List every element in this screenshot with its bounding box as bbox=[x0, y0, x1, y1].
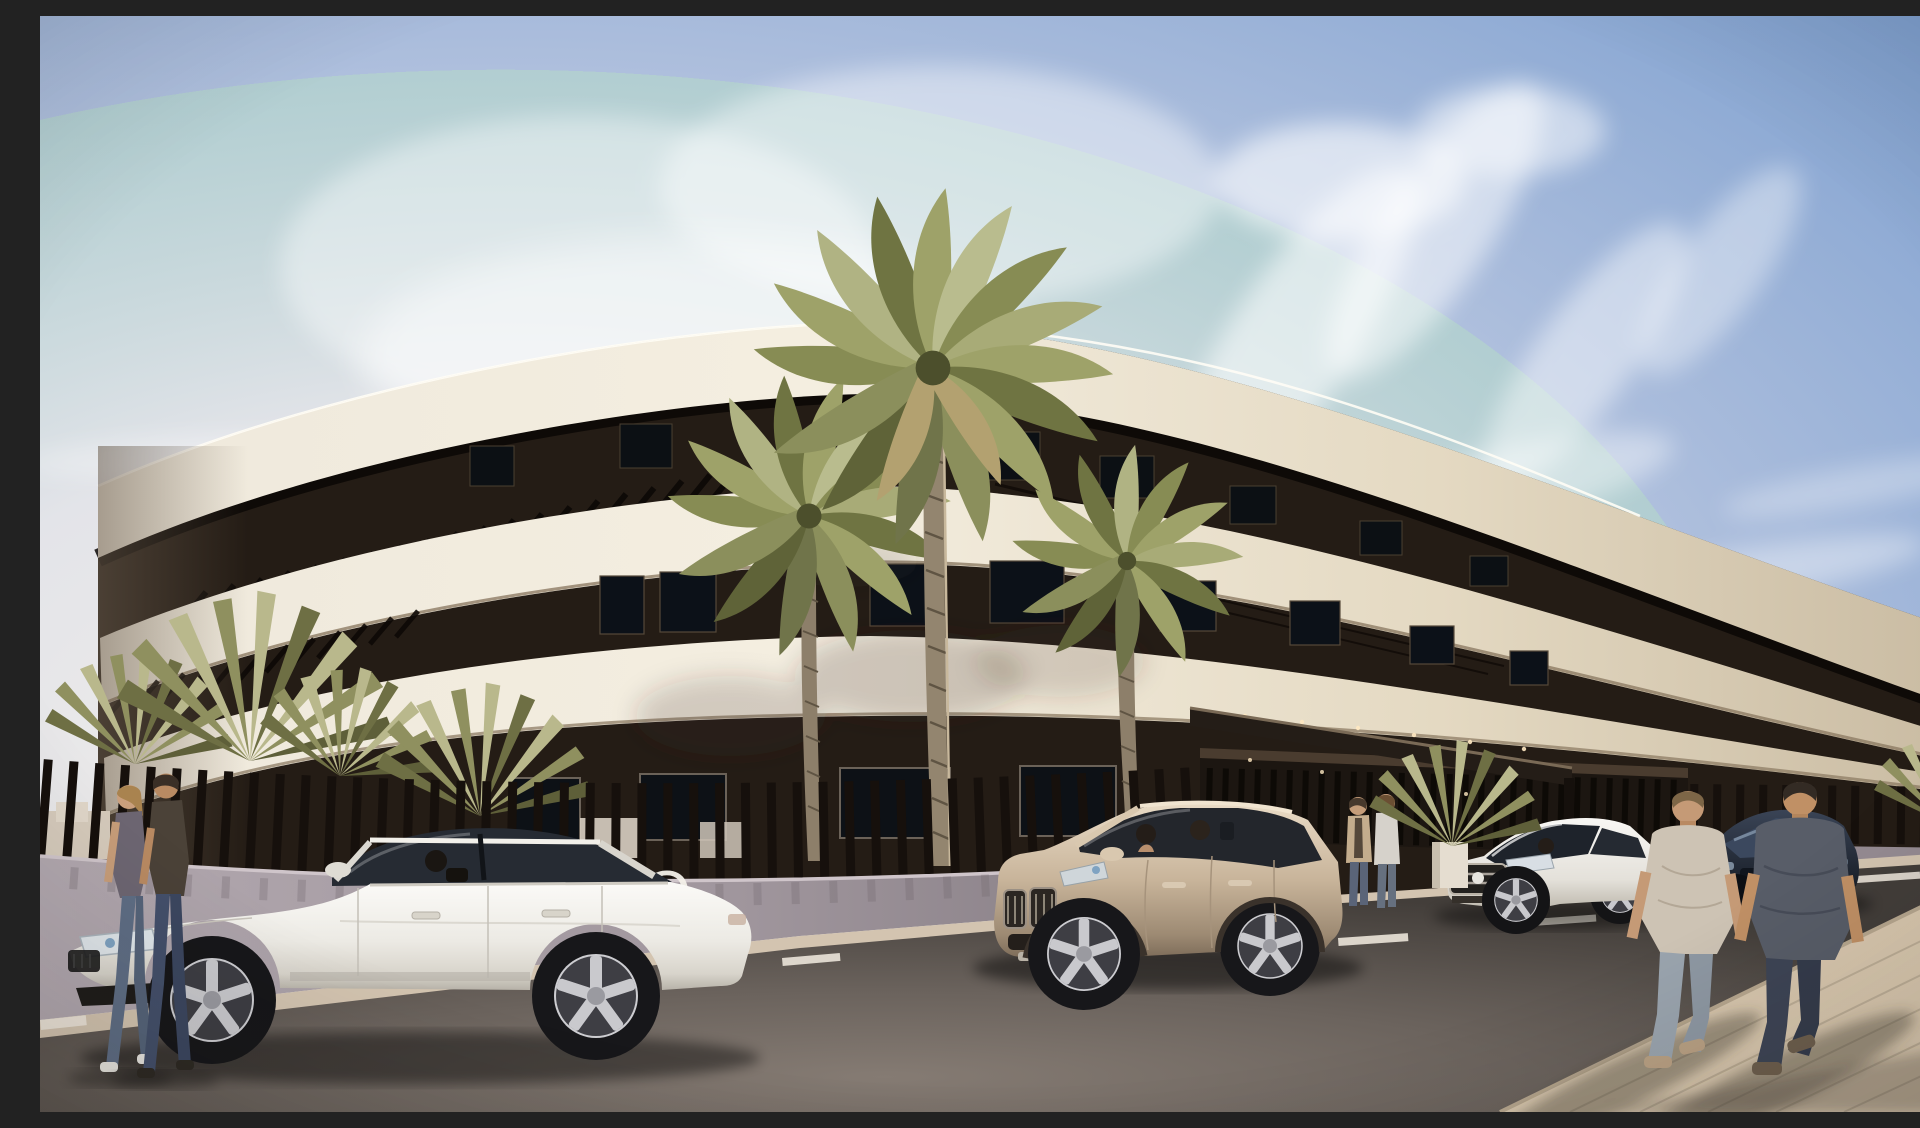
vignette-overlay bbox=[40, 16, 1920, 1112]
render-canvas: TO bbox=[40, 16, 1920, 1112]
architectural-render-image: TO bbox=[40, 16, 1920, 1112]
